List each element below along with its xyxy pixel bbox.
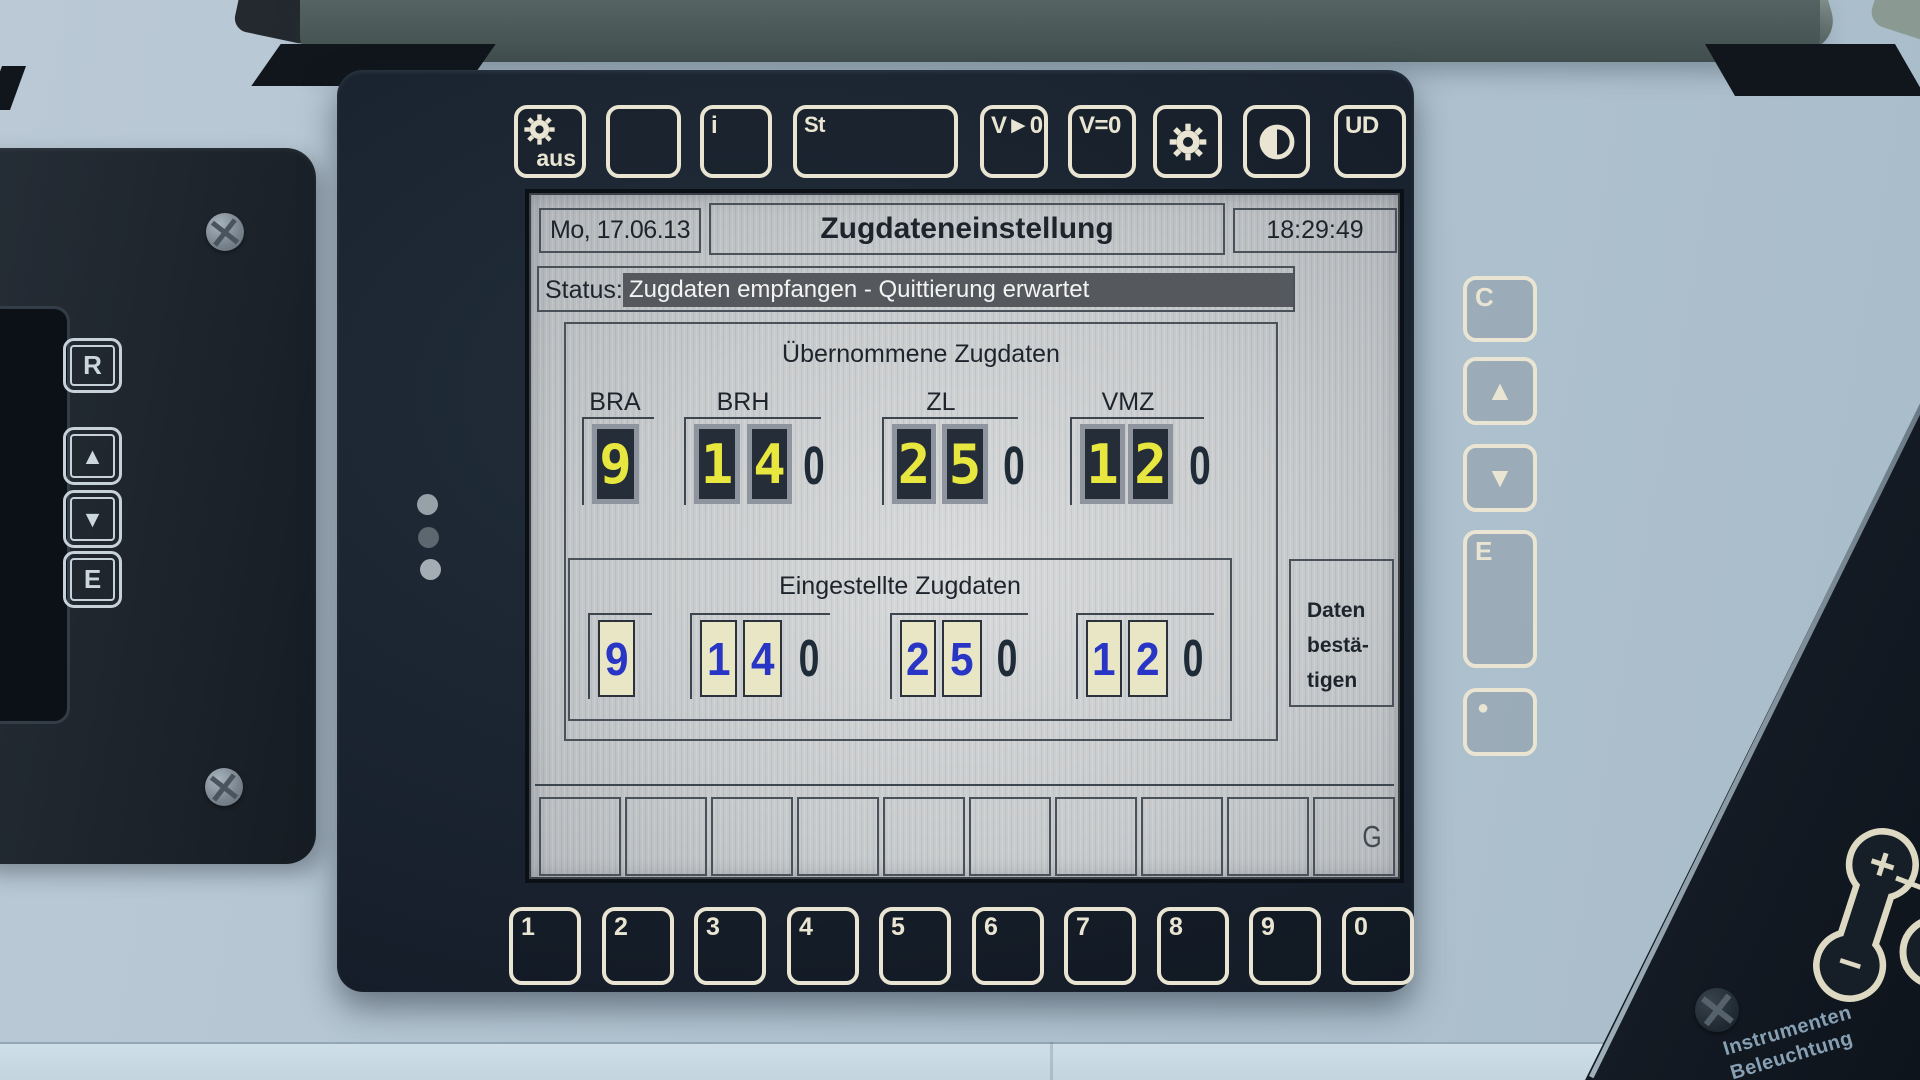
bezel-led-1 [417, 494, 438, 515]
number-key-7-label: 7 [1076, 913, 1090, 942]
number-key-6[interactable]: 6 [972, 907, 1044, 985]
bracket-line [882, 417, 884, 505]
softkey-cell [1227, 797, 1309, 876]
digit-value: 5 [949, 433, 982, 496]
button-info[interactable]: i [700, 105, 772, 178]
number-key-9-label: 9 [1261, 913, 1275, 942]
softkey-cell [1141, 797, 1223, 876]
bracket-line [684, 417, 821, 419]
status-message: Zugdaten empfangen - Quittierung erwarte… [623, 273, 1293, 307]
digit-value: 2 [1134, 433, 1167, 496]
right-key-enter-label: E [1475, 536, 1492, 567]
sun-visor [300, 0, 1820, 62]
number-key-3-label: 3 [706, 913, 720, 942]
digit-value: 2 [898, 433, 931, 496]
number-key-2-label: 2 [614, 913, 628, 942]
number-key-0-label: 0 [1354, 913, 1368, 942]
button-display-off[interactable]: aus [514, 105, 586, 178]
received-digit-cell: 2 [892, 424, 936, 504]
entered-suffix: 0 [795, 629, 824, 689]
number-key-1[interactable]: 1 [509, 907, 581, 985]
number-key-3[interactable]: 3 [694, 907, 766, 985]
button-v-greater-0-label: V►0 [991, 112, 1043, 140]
entered-suffix: 0 [1179, 629, 1208, 689]
bezel-led-3 [420, 559, 441, 580]
softkey-cell-g: G [1313, 797, 1395, 876]
received-suffix: 0 [1000, 435, 1029, 497]
ledge-seam [1050, 1042, 1053, 1080]
digit-value: 9 [599, 433, 632, 496]
wall-edge-left [0, 66, 26, 110]
up-arrow-icon: ▲ [1486, 375, 1514, 407]
up-arrow-icon: ▲ [81, 443, 104, 470]
button-ud[interactable]: UD [1334, 105, 1406, 178]
button-info-label: i [711, 112, 717, 140]
digit-value: 1 [701, 433, 734, 496]
entered-digit-cell: 1 [700, 620, 737, 697]
number-key-0[interactable]: 0 [1342, 907, 1414, 985]
digit-value: 5 [950, 632, 974, 686]
softkey-divider [535, 784, 1394, 786]
bracket-line [684, 417, 686, 505]
number-key-5[interactable]: 5 [879, 907, 951, 985]
confirm-data-button[interactable]: Daten bestä- tigen [1289, 559, 1394, 707]
digit-value: 1 [1092, 632, 1116, 686]
softkey-g-label: G [1362, 819, 1389, 855]
left-key-enter-label: E [84, 564, 101, 595]
entered-digit-cell: 4 [743, 620, 782, 697]
number-key-7[interactable]: 7 [1064, 907, 1136, 985]
digit-value: 1 [1086, 433, 1119, 496]
button-st-label: St [804, 112, 825, 138]
screen-clock: 18:29:49 [1233, 208, 1397, 253]
number-key-1-label: 1 [521, 913, 535, 942]
received-title: Übernommene Zugdaten [564, 340, 1278, 369]
screen-date: Mo, 17.06.13 [539, 208, 701, 253]
digit-value: 2 [906, 632, 930, 686]
cab-wall: R ▲ ▼ E aus i St V►0 V=0 [0, 0, 1920, 1080]
digit-value: 1 [707, 632, 731, 686]
bracket-line [1070, 417, 1204, 419]
dot-icon: ● [1477, 697, 1489, 720]
number-key-2[interactable]: 2 [602, 907, 674, 985]
button-v-greater-0[interactable]: V►0 [980, 105, 1048, 178]
right-key-dot[interactable]: ● [1463, 688, 1537, 756]
entered-suffix: 0 [993, 629, 1022, 689]
entered-title: Eingestellte Zugdaten [568, 572, 1232, 601]
bracket-line [690, 613, 692, 699]
received-suffix: 0 [800, 435, 829, 497]
softkey-cell [797, 797, 879, 876]
confirm-line-1: Daten [1307, 593, 1392, 628]
bracket-line [1070, 417, 1072, 505]
button-v-equals-0-label: V=0 [1079, 112, 1121, 140]
received-digit-cell: 4 [747, 424, 792, 504]
number-key-8-label: 8 [1169, 913, 1183, 942]
entered-digit-cell: 5 [942, 620, 982, 697]
number-key-8[interactable]: 8 [1157, 907, 1229, 985]
bracket-line [588, 613, 590, 699]
right-key-clear-label: C [1475, 282, 1494, 313]
entered-digit-cell: 2 [900, 620, 936, 697]
button-display-off-label: aus [536, 145, 576, 172]
button-ud-label: UD [1345, 112, 1379, 140]
received-digit-cell: 9 [592, 424, 639, 504]
column-label-vmz: VMZ [1088, 388, 1168, 417]
sun-icon [1168, 122, 1208, 162]
ceiling-stub-far-right [1868, 0, 1920, 44]
left-key-release[interactable]: R [63, 338, 122, 393]
confirm-line-2: bestä- [1307, 628, 1392, 663]
bracket-line [582, 417, 654, 419]
digit-value: 2 [1136, 632, 1160, 686]
number-key-4-label: 4 [799, 913, 813, 942]
confirm-line-3: tigen [1307, 663, 1392, 698]
desk-ledge [0, 1042, 1620, 1080]
entered-digit-cell: 1 [1086, 620, 1122, 697]
bracket-line [890, 613, 892, 699]
button-brightness[interactable] [1153, 105, 1222, 178]
received-digit-cell: 1 [694, 424, 740, 504]
bracket-line [890, 613, 1028, 615]
entered-digit-cell: 9 [598, 620, 635, 697]
softkey-cell [1055, 797, 1137, 876]
button-v-equals-0[interactable]: V=0 [1068, 105, 1136, 178]
number-key-5-label: 5 [891, 913, 905, 942]
button-blank[interactable] [606, 105, 681, 178]
bracket-line [882, 417, 1018, 419]
status-bar: Status: Zugdaten empfangen - Quittierung… [537, 266, 1295, 312]
received-suffix: 0 [1186, 435, 1215, 497]
softkey-cell [969, 797, 1051, 876]
screw [206, 213, 244, 251]
button-st[interactable]: St [793, 105, 958, 178]
second-rocker-partial [1903, 919, 1920, 985]
bezel-led-2 [418, 527, 439, 548]
softkey-cell [625, 797, 707, 876]
left-mini-display [0, 306, 70, 724]
column-label-zl: ZL [901, 388, 981, 417]
status-label: Status: [545, 276, 623, 305]
bracket-line [582, 417, 584, 505]
bracket-line [690, 613, 830, 615]
down-arrow-icon: ▼ [1486, 462, 1514, 494]
right-key-down[interactable]: ▼ [1463, 444, 1537, 512]
bracket-line [588, 613, 652, 615]
screw [205, 768, 243, 806]
received-digit-cell: 1 [1080, 424, 1125, 504]
left-key-enter[interactable]: E [63, 551, 122, 608]
received-digit-cell: 5 [942, 424, 988, 504]
digit-value: 4 [751, 632, 775, 686]
gear-icon [523, 113, 556, 146]
down-arrow-icon: ▼ [81, 506, 104, 533]
right-key-clear[interactable]: C [1463, 276, 1537, 342]
screw [1695, 988, 1739, 1032]
left-key-release-label: R [83, 350, 102, 381]
right-key-up[interactable]: ▲ [1463, 357, 1537, 425]
column-label-bra: BRA [575, 388, 655, 417]
column-label-brh: BRH [703, 388, 783, 417]
received-digit-cell: 2 [1128, 424, 1173, 504]
number-key-9[interactable]: 9 [1249, 907, 1321, 985]
digit-value: 9 [605, 632, 629, 686]
softkey-cell [539, 797, 621, 876]
number-key-6-label: 6 [984, 913, 998, 942]
softkey-cell [711, 797, 793, 876]
softkey-cell [883, 797, 965, 876]
contrast-icon [1258, 123, 1296, 161]
hinge-right [1705, 44, 1920, 96]
bracket-line [1076, 613, 1214, 615]
digit-value: 4 [753, 433, 786, 496]
left-key-down[interactable]: ▼ [63, 490, 122, 548]
bracket-line [1076, 613, 1078, 699]
entered-digit-cell: 2 [1128, 620, 1168, 697]
right-key-enter[interactable]: E [1463, 530, 1537, 668]
page-title: Zugdateneinstellung [709, 203, 1225, 255]
number-key-4[interactable]: 4 [787, 907, 859, 985]
left-key-up[interactable]: ▲ [63, 427, 122, 485]
mfd-screen: Mo, 17.06.13 Zugdateneinstellung 18:29:4… [529, 193, 1400, 879]
button-contrast[interactable] [1243, 105, 1310, 178]
